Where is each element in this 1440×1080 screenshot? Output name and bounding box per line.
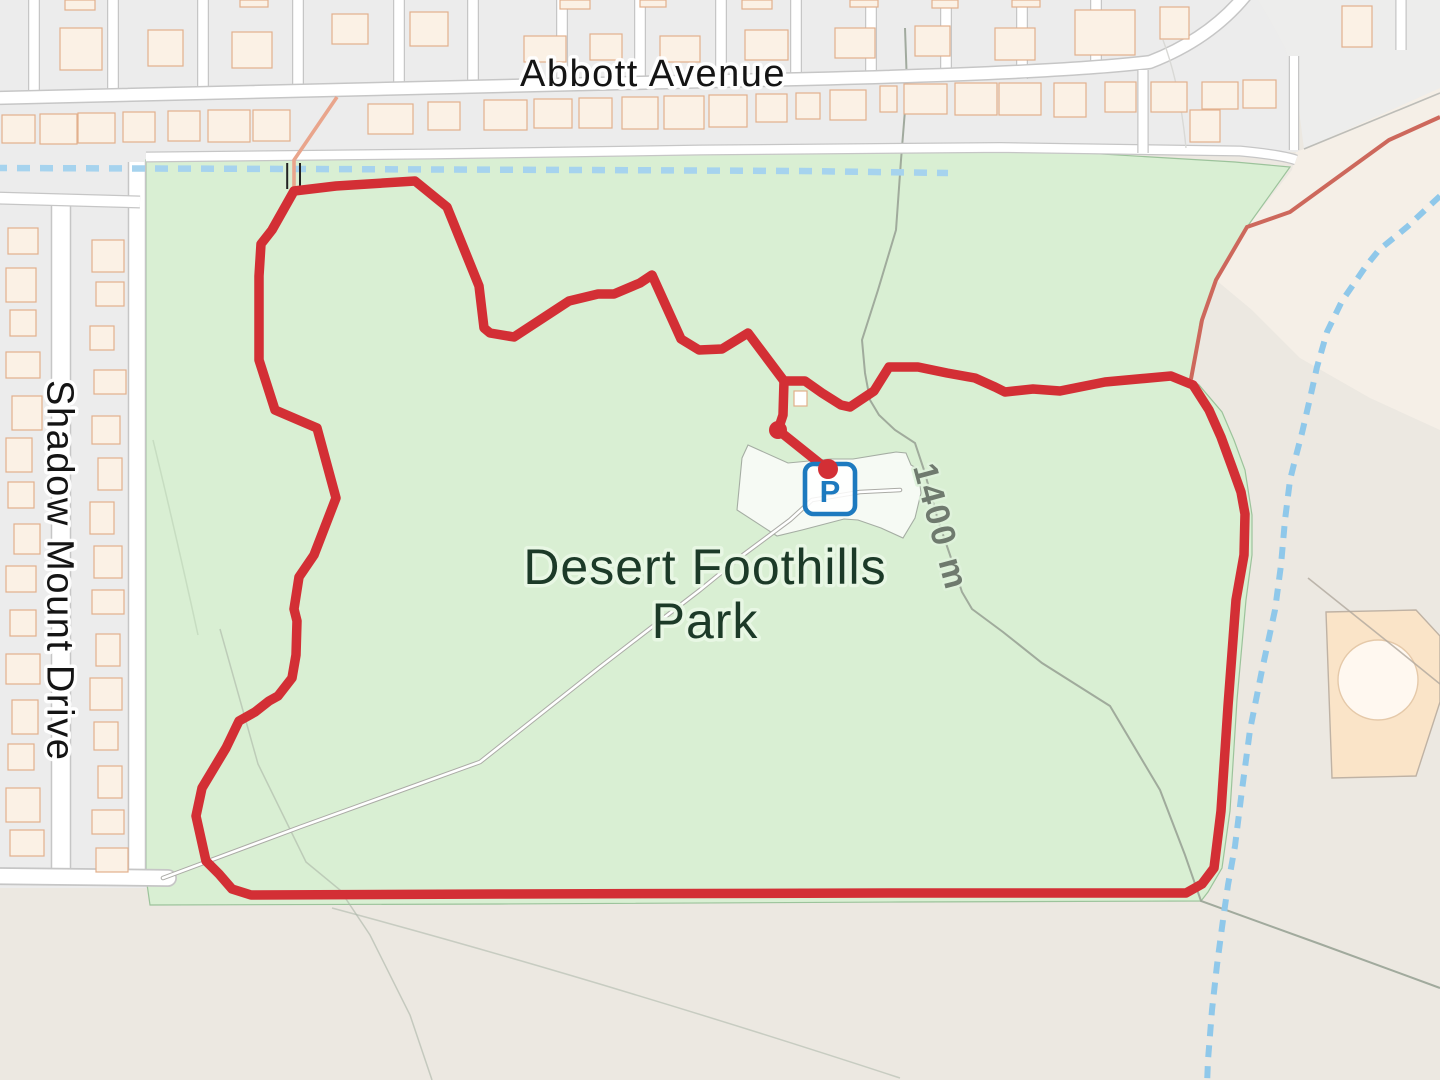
svg-text:Abbott Avenue: Abbott Avenue: [520, 53, 786, 95]
svg-text:Park: Park: [652, 593, 759, 649]
svg-text:P: P: [820, 474, 841, 509]
svg-text:Desert Foothills: Desert Foothills: [523, 539, 886, 595]
svg-text:Shadow Mount Drive: Shadow Mount Drive: [39, 380, 81, 762]
